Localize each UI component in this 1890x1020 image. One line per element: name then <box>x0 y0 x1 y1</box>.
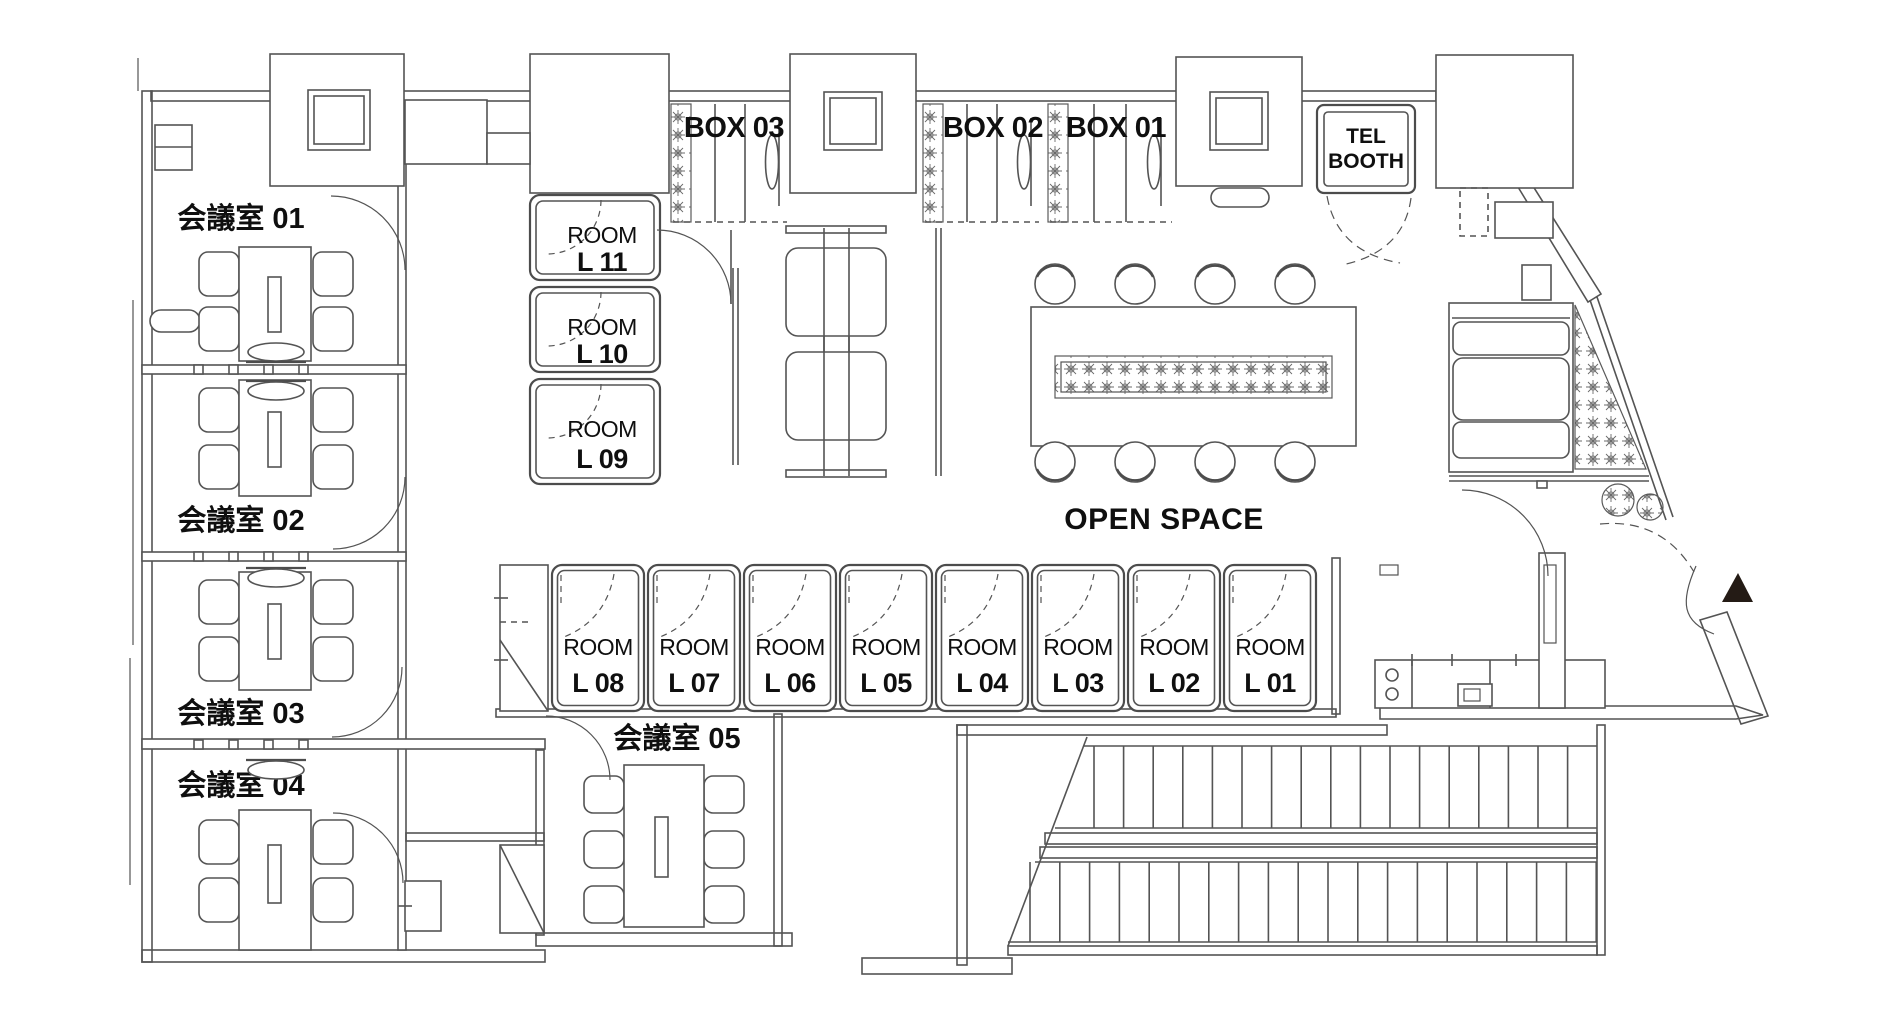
door-swing <box>1342 198 1411 265</box>
floor-plan-page: BOX 03 BOX 02 BOX 01 TEL BOOTH ROOM L 11 <box>0 0 1890 1020</box>
box-room-01: BOX 01 <box>1048 104 1172 222</box>
workstations <box>733 226 941 477</box>
room-label: ROOM <box>755 634 825 660</box>
room-number: L 08 <box>572 668 624 698</box>
room-number: L 07 <box>668 668 720 698</box>
floor-plan-drawing: BOX 03 BOX 02 BOX 01 TEL BOOTH ROOM L 11 <box>0 0 1890 1020</box>
room-number: L 09 <box>576 444 628 474</box>
box-room-03: BOX 03 <box>671 104 787 222</box>
room-label: ROOM <box>567 314 637 340</box>
meeting-room-label: 会議室 03 <box>177 696 304 730</box>
room-l05: ROOM L 05 <box>840 565 932 711</box>
meeting-room-05: 会議室 05 <box>398 721 744 933</box>
meeting-room-04: 会議室 04 <box>177 760 353 950</box>
room-l04: ROOM L 04 <box>936 565 1028 711</box>
entrance-arrow-icon <box>1722 573 1753 602</box>
room-number: L 03 <box>1052 668 1104 698</box>
box-room-label: BOX 02 <box>943 112 1043 144</box>
display-icon <box>248 569 304 587</box>
room-number: L 02 <box>1148 668 1200 698</box>
stairs <box>1008 725 1605 955</box>
stool <box>1035 442 1315 482</box>
room-label: ROOM <box>1235 634 1305 660</box>
stair-treads-lower <box>1030 862 1596 942</box>
room-l01: ROOM L 01 <box>1224 565 1316 711</box>
room-label: ROOM <box>567 416 637 442</box>
room-label: ROOM <box>563 634 633 660</box>
meeting-room-02: 会議室 02 <box>177 380 353 537</box>
room-label: ROOM <box>851 634 921 660</box>
box-room-label: BOX 03 <box>684 112 785 144</box>
room-label: ROOM <box>567 222 637 248</box>
room-number: L 06 <box>764 668 816 698</box>
display-icon <box>248 761 304 779</box>
planter-partition <box>923 104 943 222</box>
room-number: L 11 <box>577 247 628 277</box>
tall-cabinet <box>1539 553 1565 708</box>
side-table <box>150 310 200 332</box>
room-number: L 10 <box>576 339 628 369</box>
storage-closet <box>398 845 544 933</box>
plant-bed <box>1575 305 1646 469</box>
entrance-plants <box>1602 484 1663 520</box>
room-l03: ROOM L 03 <box>1032 565 1124 711</box>
open-space-label: OPEN SPACE <box>1064 503 1264 536</box>
room-label: ROOM <box>947 634 1017 660</box>
outer-walls <box>130 58 1768 974</box>
display-icon <box>248 343 304 361</box>
box-room-label: BOX 01 <box>1066 112 1167 144</box>
box-room-02: BOX 02 <box>923 104 1043 222</box>
room-number: L 05 <box>860 668 912 698</box>
meeting-room-label: 会議室 01 <box>177 201 304 235</box>
stool <box>1035 264 1315 304</box>
open-space-table <box>1031 264 1356 482</box>
utility-closet <box>494 565 548 711</box>
meeting-room-label: 会議室 05 <box>613 721 740 755</box>
tel-booth-label-line2: BOOTH <box>1328 150 1404 173</box>
display-icon <box>248 382 304 400</box>
open-space: OPEN SPACE <box>733 226 1356 536</box>
room-l08: ROOM L 08 <box>552 565 644 711</box>
stair-treads-upper <box>1094 746 1568 828</box>
tel-booth-label-line1: TEL <box>1346 125 1386 148</box>
room-l10: ROOM L 10 <box>530 287 660 372</box>
kitchen-counter <box>1375 553 1605 708</box>
room-l07: ROOM L 07 <box>648 565 740 711</box>
room-number: L 04 <box>956 668 1008 698</box>
room-l09: ROOM L 09 <box>530 379 660 484</box>
room-number: L 01 <box>1244 668 1296 698</box>
door-swing <box>1327 196 1400 263</box>
tel-booth: TEL BOOTH <box>1317 105 1415 265</box>
room-label: ROOM <box>1043 634 1113 660</box>
room-l11: ROOM L 11 <box>530 195 660 280</box>
room-l06: ROOM L 06 <box>744 565 836 711</box>
meeting-room-03: 会議室 03 <box>177 568 353 730</box>
meeting-room-01: 会議室 01 <box>150 201 353 362</box>
meeting-room-label: 会議室 02 <box>177 503 304 537</box>
room-l02: ROOM L 02 <box>1128 565 1220 711</box>
room-label: ROOM <box>1139 634 1209 660</box>
room-label: ROOM <box>659 634 729 660</box>
